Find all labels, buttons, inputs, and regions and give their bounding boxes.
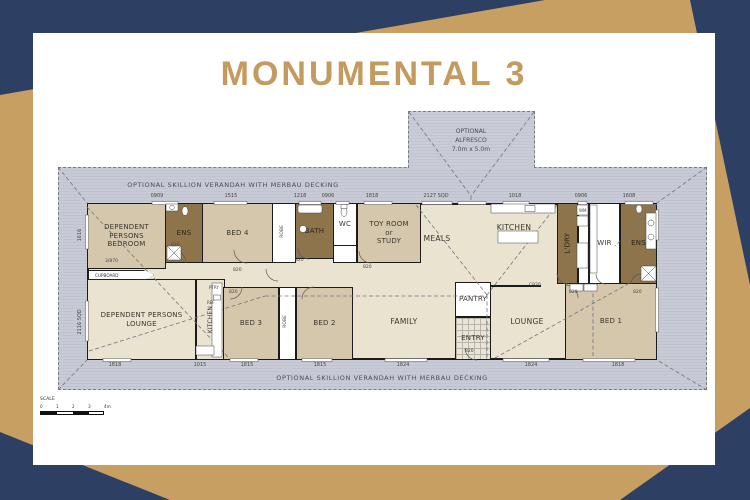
meals-label: MEALS [407,234,467,243]
scale-tick: 3 [88,404,91,409]
verandah-top-label: OPTIONAL SKILLION VERANDAH WITH MERBAU D… [123,181,343,189]
floor-plan: OPTIONAL SKILLION VERANDAH WITH MERBAU D… [33,33,715,465]
appliance-column [578,203,589,284]
dim-bottom: 1818 [95,362,135,368]
dim-left: 1616 [77,220,83,250]
scale-tick: 4m [104,404,111,409]
dim-top: 0906 [561,193,601,199]
door-label: 820 [171,243,180,248]
room-bed1: BED 1 [565,283,657,360]
kitchenette-label: KITCHEN [207,306,214,333]
room-bath: BATH [295,203,334,259]
room-ensuite-left: ENS [165,203,203,263]
alfresco-label: OPTIONAL ALFRESCO 7.0m x 5.0m [431,127,511,154]
room-toy-study: TOY ROOM or STUDY [357,203,421,263]
robe-label-top: ROBE [280,225,285,238]
room-bed3: BED 3 [223,287,279,360]
cupboard-arrow: CUPBOARD [88,270,154,280]
room-pantry: PANTRY [455,282,491,317]
scale-tick: 0 [40,404,43,409]
door-label: 820 [233,268,242,273]
scale-bar [40,411,104,415]
beam-label: C920 [529,283,541,288]
washer-label: WM [579,208,586,213]
door-label: 820 [569,290,578,295]
room-wc: WC [333,203,357,246]
dim-bottom: 1815 [227,362,267,368]
room-wir: WIR [589,203,620,284]
dim-top: 0909 [137,193,177,199]
door-label: 820 [229,290,238,295]
room-laundry: L'DRY [557,203,578,284]
dim-left: 2116 SQD [77,302,83,342]
cupboard-size-label: 3/870 [105,259,118,264]
dim-bottom: 1824 [383,362,423,368]
room-bed2: BED 2 [296,287,353,360]
verandah-bottom-label: OPTIONAL SKILLION VERANDAH WITH MERBAU D… [252,374,512,382]
robe-label-bottom: ROBE [283,315,288,328]
dim-bottom: 1815 [300,362,340,368]
door-label: 820 [465,349,474,354]
dim-top: 1515 [211,193,251,199]
dim-bottom: 1824 [511,362,551,368]
dim-top: 2127 SQD [416,193,456,199]
room-dependent-persons-lounge: DEPENDENT PERSONS LOUNGE [87,279,196,360]
dim-top: 0906 [308,193,348,199]
laundry-label: L'DRY [563,233,571,254]
door-label: 820 [295,258,304,263]
dim-top: 1818 [352,193,392,199]
scale-tick: 2 [72,404,75,409]
door-label: 820 [633,290,642,295]
door-label: 820 [363,265,372,270]
room-dependent-persons-bedroom: DEPENDENT PERSONS BEDROOM [87,203,166,269]
family-label: FAMILY [374,317,434,326]
room-ensuite-right: ENS [620,203,657,284]
scale-label: SCALE [40,397,55,402]
lounge-label: LOUNGE [497,317,557,326]
dim-top: 1018 [495,193,535,199]
dim-bottom: 1015 [180,362,220,368]
dim-top: 1608 [609,193,649,199]
cupboard-label: CUPBOARD [95,273,119,278]
room-kitchenette: KITCHEN [196,279,225,360]
room-bed4: BED 4 [202,203,273,263]
scale-tick: 1 [56,404,59,409]
fridge-label: REF [207,300,215,305]
page-background: MONUMENTAL 3 OPTIONAL SKILLION VERANDAH … [0,0,750,500]
kitchen-label: KITCHEN [484,223,544,232]
linen-closet [333,245,357,263]
dim-bottom: 1818 [598,362,638,368]
pantry-cupboard-label: PTRY [209,285,219,290]
plan-card: MONUMENTAL 3 OPTIONAL SKILLION VERANDAH … [33,33,715,465]
